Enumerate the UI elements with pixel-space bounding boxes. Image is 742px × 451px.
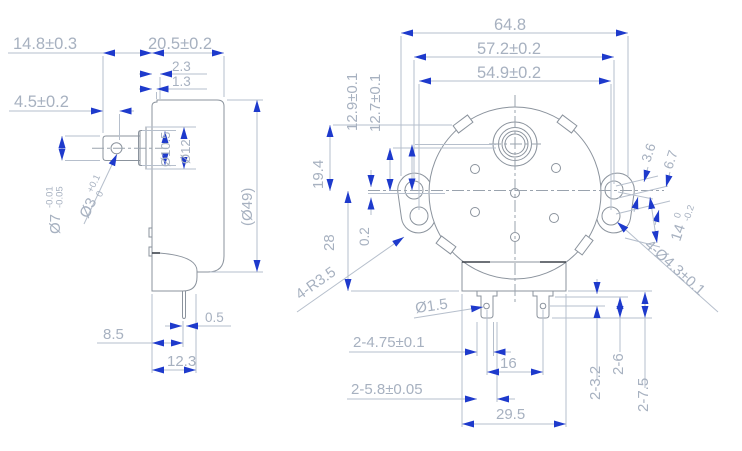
drawing-canvas: 14.8±0.3 20.5±0.2 2.3 1.3 4.5±0.2 Ø7 -0.… <box>0 0 742 451</box>
dim-shaft-tol-lower: -0.05 <box>55 186 66 208</box>
dim-shaft-offset-2: 12.7±0.1 <box>367 74 384 132</box>
dim-cross-hole-group: Ø3 +0.1 0 <box>74 173 112 222</box>
dim-pin-width: 2-4.75±0.1 <box>353 334 425 351</box>
dim-arrow-line <box>644 167 648 182</box>
dim-ear-span-tol-lower: -0.2 <box>682 204 698 223</box>
dim-body-diameter: (Ø49) <box>239 188 256 226</box>
dim-arrow-line <box>655 210 659 225</box>
dim-ear-edge-1: 3.6 <box>639 141 659 163</box>
dim-pin-offset: 8.5 <box>103 326 124 343</box>
dim-pin-detail-2: 2-6 <box>610 353 627 375</box>
dim-pin-detail-3: 2-7.5 <box>635 378 652 412</box>
dim-box-offset: 28 <box>321 234 338 251</box>
dim-shaft-diameter-group: Ø7 -0.01 -0.05 <box>45 186 66 234</box>
dim-pin-pitch: 16 <box>500 355 517 372</box>
side-view-dimensions: 14.8±0.3 20.5±0.2 2.3 1.3 4.5±0.2 Ø7 -0.… <box>8 35 263 373</box>
dim-hole-offset: 4.5±0.2 <box>14 93 69 111</box>
front-view-geometry <box>368 95 664 318</box>
dim-shaft-offset-1: 12.9±0.1 <box>344 73 361 131</box>
dim-arrow-line <box>666 172 670 187</box>
terminal-pin-side <box>183 291 186 319</box>
dim-pin-thickness: 2-5.8±0.05 <box>351 381 423 398</box>
dim-ear-span: 14 <box>668 222 689 243</box>
dim-boss-diameter-1: Ø10.5 <box>158 132 173 167</box>
dim-pin-detail-1: 2-3.2 <box>587 366 604 400</box>
pin-hole <box>484 303 490 309</box>
dim-ear-radius: 4-R3.5 <box>293 264 340 304</box>
dim-shaft-protrusion: 14.8±0.3 <box>13 35 77 53</box>
dim-boss-diameter-2: Ø12 <box>178 139 193 164</box>
dim-box-width: 29.5 <box>496 406 525 423</box>
dim-pin-thickness: 0.5 <box>205 310 224 325</box>
dim-front-step-1: 2.3 <box>172 59 191 74</box>
terminal-box-side <box>152 253 197 291</box>
dim-ear-edge-2: 6.7 <box>661 148 681 170</box>
dim-shaft-diameter: Ø7 <box>47 214 64 234</box>
dim-mount-span-inner: 54.9±0.2 <box>477 64 541 82</box>
dim-arrow-line <box>634 197 638 212</box>
pin-hole <box>540 303 546 309</box>
motor-dimension-drawing: 14.8±0.3 20.5±0.2 2.3 1.3 4.5±0.2 Ø7 -0.… <box>0 0 742 451</box>
dim-front-step-2: 1.3 <box>172 74 191 89</box>
dim-tab-offset: 19.4 <box>310 160 327 189</box>
dim-cross-hole-tol-upper: +0.1 <box>85 173 103 195</box>
dim-mount-hole-diameter: 4-Ø4.3±0.1 <box>641 236 708 299</box>
dim-mount-span-outer: 57.2±0.2 <box>477 40 541 58</box>
dim-cross-hole-diameter: Ø3 <box>76 195 100 220</box>
dim-center-offset: 0.2 <box>357 227 372 246</box>
motor-body-side-outline <box>152 100 224 272</box>
dim-overall-width: 64.8 <box>494 16 526 34</box>
dim-body-length: 20.5±0.2 <box>148 35 212 53</box>
dim-ear-span-group: 14 0 -0.2 <box>665 201 697 244</box>
dim-box-depth: 12.3 <box>167 353 196 370</box>
